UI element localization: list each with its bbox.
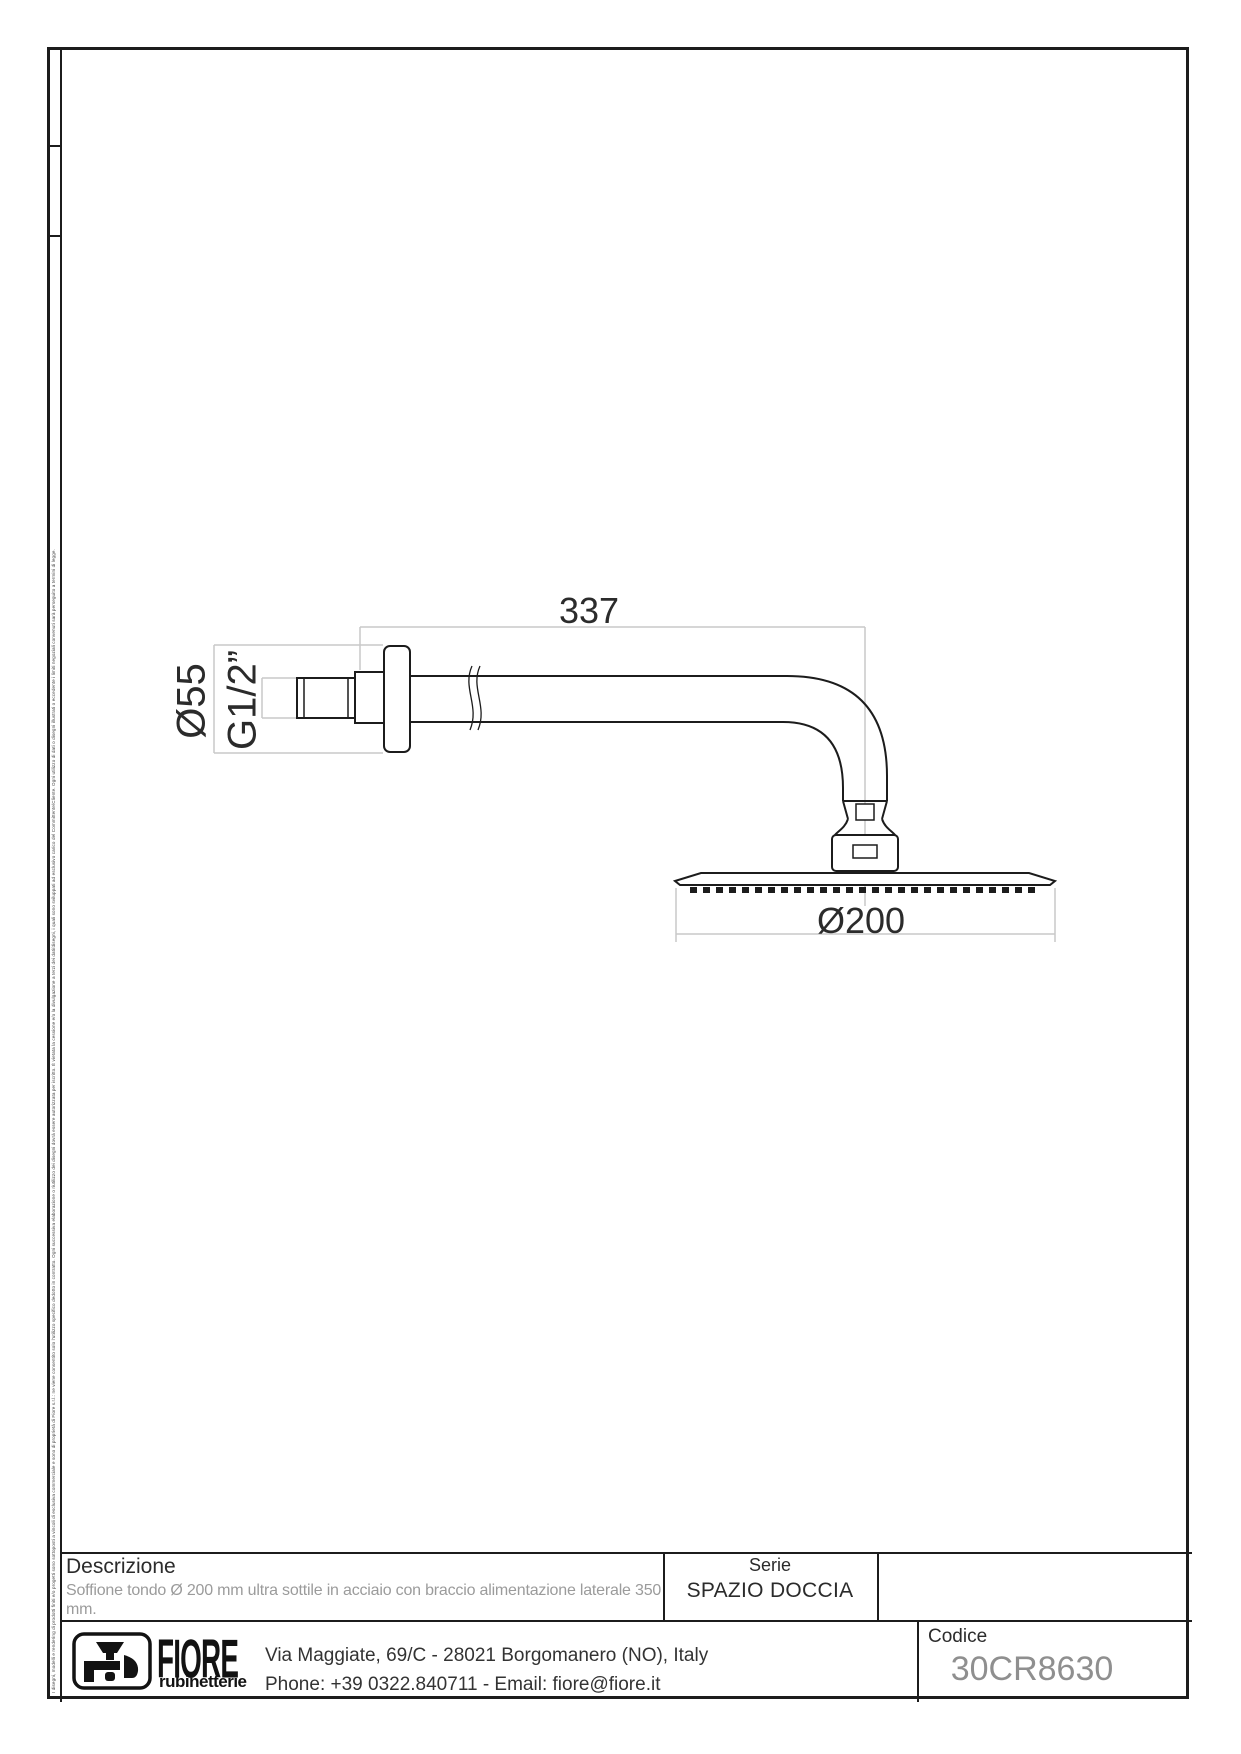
legal-disclaimer-vertical: I disegni, modelli e rendering di prodot… (48, 315, 60, 1693)
description-line-2: mm. (66, 1600, 661, 1619)
code-value: 30CR8630 (917, 1650, 1147, 1689)
fiore-logo-icon (72, 1632, 152, 1690)
page-border (47, 47, 1189, 1699)
manufacturer-subname: rubinetterie (159, 1672, 247, 1692)
titleblock-divider-right (877, 1552, 879, 1620)
code-label: Codice (928, 1626, 987, 1648)
series-label: Serie (749, 1555, 791, 1576)
margin-strip-line (60, 47, 62, 1702)
series-cell: Serie SPAZIO DOCCIA (663, 1555, 877, 1617)
description-text: Soffione tondo Ø 200 mm ultra sottile in… (66, 1581, 661, 1619)
margin-strip-divider (49, 235, 60, 237)
titleblock-top-line (60, 1552, 1192, 1554)
manufacturer-address: Via Maggiate, 69/C - 28021 Borgomanero (… (265, 1641, 708, 1699)
datasheet-page: 337 Ø55 G1/2” Ø200 I disegni, modelli e … (0, 0, 1241, 1754)
description-label: Descrizione (66, 1555, 176, 1579)
description-line-1: Soffione tondo Ø 200 mm ultra sottile in… (66, 1581, 661, 1600)
titleblock-row-divider (60, 1620, 1192, 1622)
margin-strip-divider (49, 145, 60, 147)
contact-line: Phone: +39 0322.840711 - Email: fiore@fi… (265, 1670, 708, 1699)
series-value: SPAZIO DOCCIA (687, 1579, 854, 1603)
address-line: Via Maggiate, 69/C - 28021 Borgomanero (… (265, 1641, 708, 1670)
